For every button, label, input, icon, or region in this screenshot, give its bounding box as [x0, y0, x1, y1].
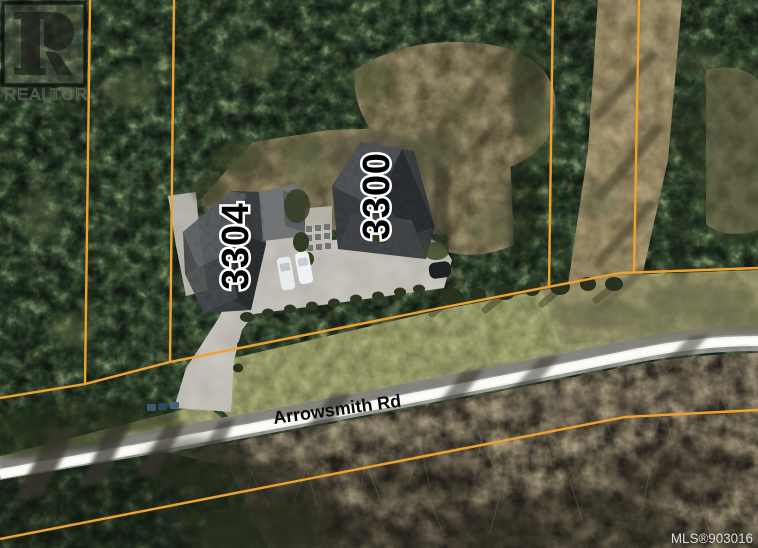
svg-text:REALTOR: REALTOR [4, 85, 88, 104]
svg-text:3304: 3304 [215, 202, 257, 290]
svg-text:3300: 3300 [356, 152, 398, 240]
svg-text:MLS®903016: MLS®903016 [671, 531, 753, 546]
